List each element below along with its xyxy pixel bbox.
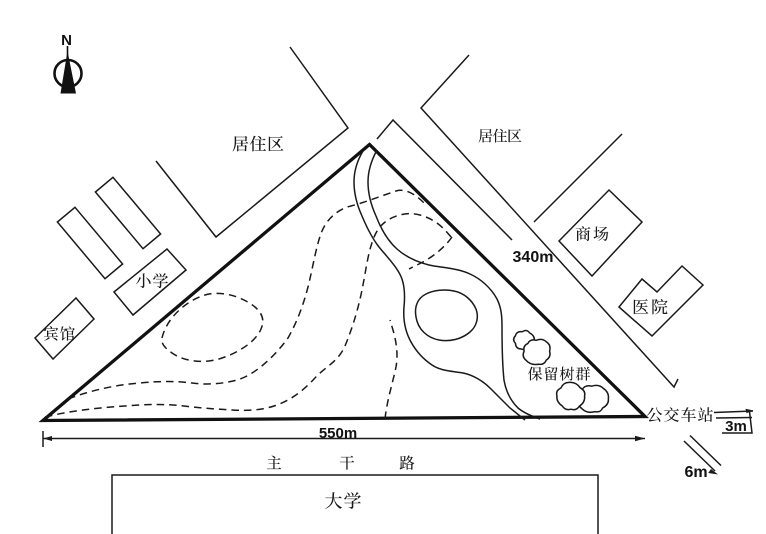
- svg-text:N: N: [61, 32, 72, 49]
- svg-text:6m: 6m: [684, 464, 707, 481]
- svg-text:550m: 550m: [319, 425, 357, 442]
- svg-text:3m: 3m: [725, 418, 747, 435]
- svg-text:340m: 340m: [513, 249, 554, 266]
